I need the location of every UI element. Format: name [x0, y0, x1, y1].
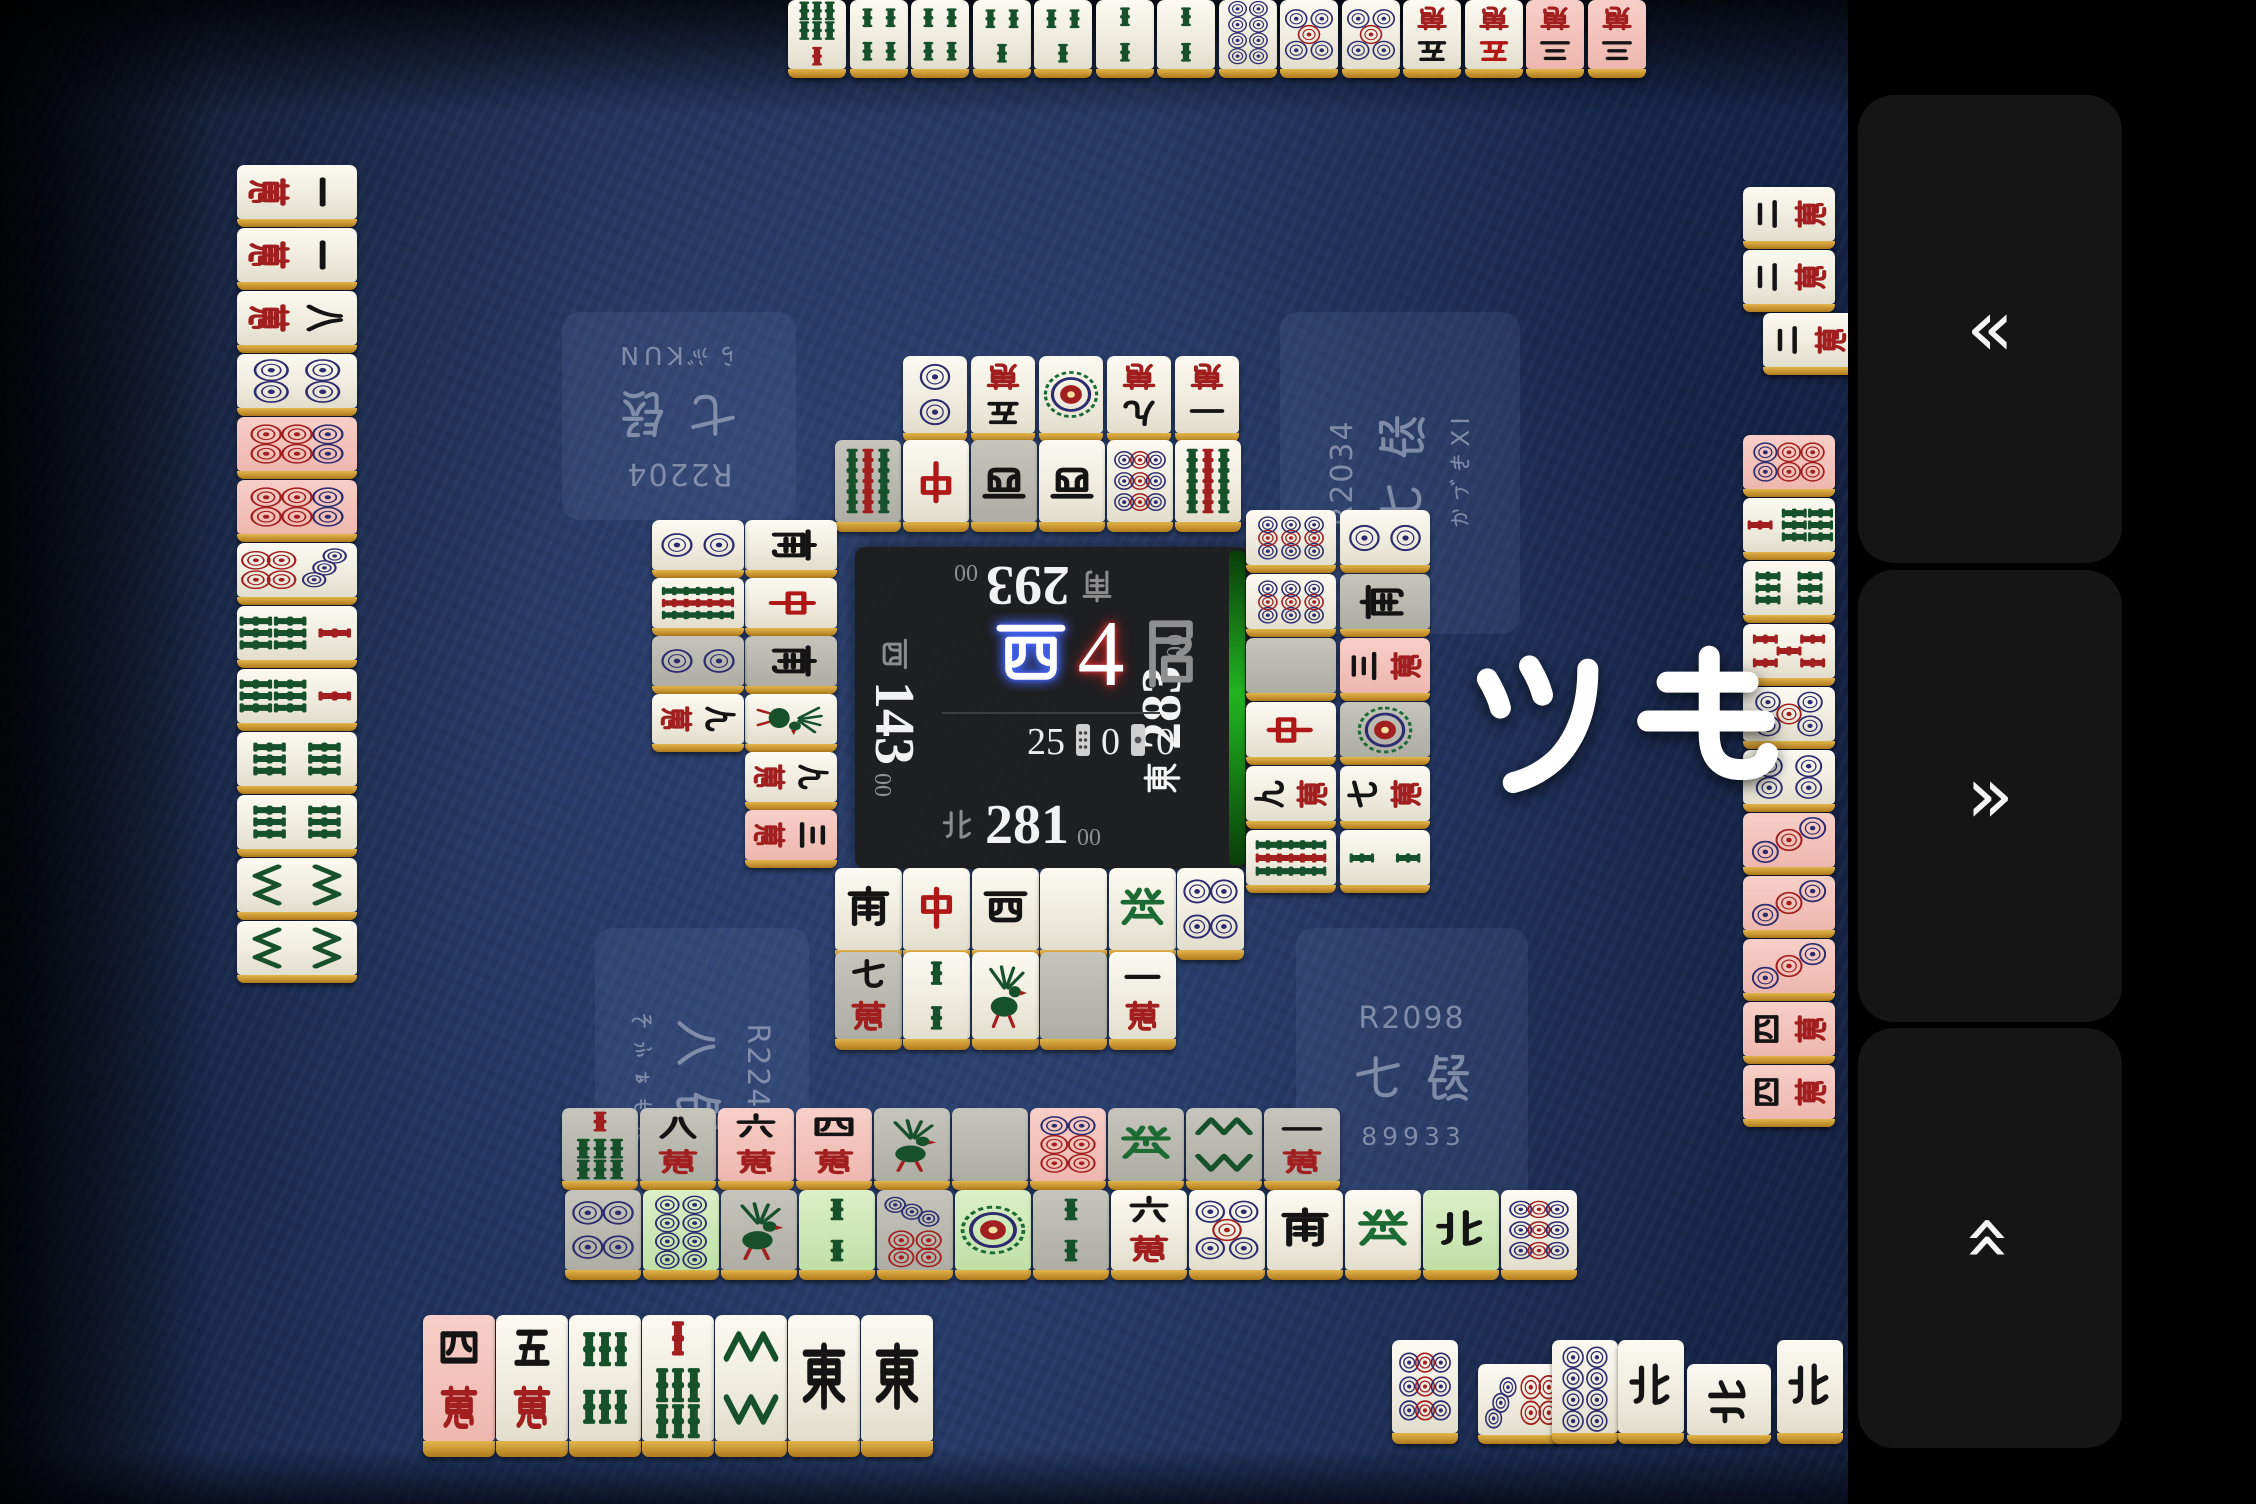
tile-B — [1040, 868, 1107, 960]
announcement-char — [1455, 640, 1617, 802]
tile-1m — [237, 228, 357, 290]
tile-2p — [652, 520, 744, 578]
tile-2m — [1743, 250, 1835, 312]
tile-4p — [1177, 868, 1244, 960]
tile-3p — [1743, 939, 1835, 1001]
score-block-north: 281 00 — [888, 792, 1152, 858]
mahjong-table: 293 00 143 00 283 00 281 00 4 25 0 0 R22… — [0, 0, 1848, 1504]
tile-5p — [1342, 0, 1400, 78]
tile-2p — [652, 636, 744, 694]
tile-6p — [237, 480, 357, 542]
tile-1s — [745, 694, 837, 752]
tile-1m — [1109, 952, 1176, 1050]
tile-E[interactable] — [788, 1315, 860, 1457]
tile-6p — [1743, 435, 1835, 497]
tile-8p — [643, 1190, 719, 1280]
tile-6s — [237, 732, 357, 794]
tile-1m — [237, 165, 357, 227]
round-suffix — [1129, 612, 1213, 696]
tiles-left-count: 25 — [1027, 720, 1065, 764]
tile-4m — [796, 1108, 872, 1190]
tile-N — [1687, 1364, 1771, 1444]
tile-N — [1618, 1340, 1684, 1444]
tile-8s — [237, 858, 357, 920]
tile-1s — [721, 1190, 797, 1280]
tile-9m — [652, 694, 744, 752]
tile-2s — [1096, 0, 1154, 78]
tile-S — [835, 868, 902, 960]
tile-1s — [972, 952, 1039, 1050]
tile-1m — [1175, 356, 1239, 442]
tile-6p — [1030, 1108, 1106, 1190]
tile-7m — [1340, 766, 1430, 829]
tile-2s — [1157, 0, 1215, 78]
tile-7p — [1478, 1364, 1562, 1444]
tile-2p — [903, 356, 967, 442]
tsumo-announcement — [1455, 640, 1787, 802]
tile-S — [1267, 1190, 1343, 1280]
tile-9s — [1246, 830, 1336, 893]
tile-9p — [1246, 510, 1336, 573]
tile-8p — [1219, 0, 1277, 78]
tile-3m — [745, 810, 837, 868]
tile-B — [952, 1108, 1028, 1190]
tile-4s — [911, 0, 969, 78]
tile-4p — [237, 354, 357, 416]
tile-9m — [745, 752, 837, 810]
tile-9p — [1501, 1190, 1577, 1280]
riichi-stick-icon — [1130, 723, 1146, 761]
tile-7s — [1743, 498, 1835, 560]
tile-W — [972, 868, 1039, 960]
tile-9m — [1107, 356, 1171, 442]
tile-C — [903, 440, 969, 532]
honba-stick-icon — [1075, 723, 1091, 761]
tile-6m — [718, 1108, 794, 1190]
honba-count: 0 — [1101, 720, 1120, 764]
collapse-button[interactable]: « — [1858, 1028, 2122, 1448]
tile-3p — [1743, 813, 1835, 875]
tile-E[interactable] — [861, 1315, 933, 1457]
tile-C — [1246, 702, 1336, 765]
tile-2s — [903, 952, 970, 1050]
tile-7p — [877, 1190, 953, 1280]
tile-5m — [971, 356, 1035, 442]
tile-8s — [1186, 1108, 1262, 1190]
tile-1m — [1264, 1108, 1340, 1190]
right-sidebar: «»« — [1848, 0, 2256, 1504]
score-north: 281 — [985, 793, 1069, 857]
round-number: 4 — [1078, 600, 1125, 708]
rewind-button-icon: « — [1966, 290, 2014, 368]
tile-1p — [1340, 702, 1430, 765]
score-west: 143 — [862, 681, 926, 765]
collapse-button-icon: « — [1951, 1214, 2029, 1262]
tile-2m — [1743, 187, 1835, 249]
tile-3m — [1340, 638, 1430, 701]
tile-2s — [799, 1190, 875, 1280]
tile-B — [1246, 638, 1336, 701]
tile-7s — [237, 669, 357, 731]
tile-3m — [1526, 0, 1584, 78]
tile-7s — [562, 1108, 638, 1190]
tile-C — [903, 868, 970, 960]
tile-4p — [565, 1190, 641, 1280]
tile-7s — [237, 606, 357, 668]
tile-8p — [1552, 1340, 1618, 1444]
tile-7p — [237, 543, 357, 605]
tile-B — [1040, 952, 1107, 1050]
tile-9p — [1392, 1340, 1458, 1444]
tile-W — [971, 440, 1037, 532]
tile-4m — [1743, 1065, 1835, 1127]
tile-8m — [640, 1108, 716, 1190]
score-south-sub: 00 — [954, 552, 978, 585]
tile-5p — [1280, 0, 1338, 78]
forward-button[interactable]: » — [1858, 570, 2122, 1022]
tile-2m — [1763, 313, 1855, 375]
tile-S — [1340, 574, 1430, 637]
tile-6m — [1111, 1190, 1187, 1280]
rewind-button[interactable]: « — [1858, 95, 2122, 563]
round-wind — [988, 611, 1074, 697]
tile-4m — [1743, 1002, 1835, 1064]
round-indicator: 4 — [975, 598, 1225, 710]
tile-2s — [1340, 830, 1430, 893]
tile-9p — [1246, 574, 1336, 637]
tile-8s[interactable] — [715, 1315, 787, 1457]
tile-3m — [1588, 0, 1646, 78]
tile-1s — [874, 1108, 950, 1190]
tile-2p — [1340, 510, 1430, 573]
forward-button-icon: » — [1966, 757, 2014, 835]
riichi-count: 0 — [1156, 720, 1175, 764]
tile-8m — [237, 291, 357, 353]
tile-8s — [237, 921, 357, 983]
tile-4s — [850, 0, 908, 78]
tile-C — [745, 578, 837, 636]
tile-7s[interactable] — [642, 1315, 714, 1457]
announcement-char — [1625, 640, 1787, 802]
tile-9s — [652, 578, 744, 636]
tile-7s — [788, 0, 846, 78]
tile-5m — [1403, 0, 1461, 78]
tile-5m[interactable] — [496, 1315, 568, 1457]
tile-9s — [835, 440, 901, 532]
tile-3p — [1743, 876, 1835, 938]
tile-6s — [1743, 561, 1835, 623]
tile-3s — [973, 0, 1031, 78]
tile-9s — [1175, 440, 1241, 532]
tile-W — [1039, 440, 1105, 532]
tile-5m — [1465, 0, 1523, 78]
tile-4m[interactable] — [423, 1315, 495, 1457]
tile-6s[interactable] — [569, 1315, 641, 1457]
tile-H — [1108, 1108, 1184, 1190]
tile-6s — [237, 795, 357, 857]
counter-row: 25 0 0 — [982, 718, 1220, 766]
tile-3s — [1034, 0, 1092, 78]
tile-S — [745, 520, 837, 578]
tile-9p — [1107, 440, 1173, 532]
tile-H — [1109, 868, 1176, 960]
divider — [942, 712, 1160, 714]
tile-7m — [835, 952, 902, 1050]
tile-N — [1423, 1190, 1499, 1280]
score-north-sub: 00 — [1077, 825, 1101, 858]
tile-9m — [1246, 766, 1336, 829]
tile-S — [745, 636, 837, 694]
tile-1p — [1039, 356, 1103, 442]
wind-north-label — [939, 806, 977, 844]
tile-2s — [1033, 1190, 1109, 1280]
tile-N — [1777, 1340, 1843, 1444]
tile-H — [1345, 1190, 1421, 1280]
wind-west-label — [875, 635, 913, 673]
tile-6p — [237, 417, 357, 479]
tile-5p — [1189, 1190, 1265, 1280]
tile-1p — [955, 1190, 1031, 1280]
